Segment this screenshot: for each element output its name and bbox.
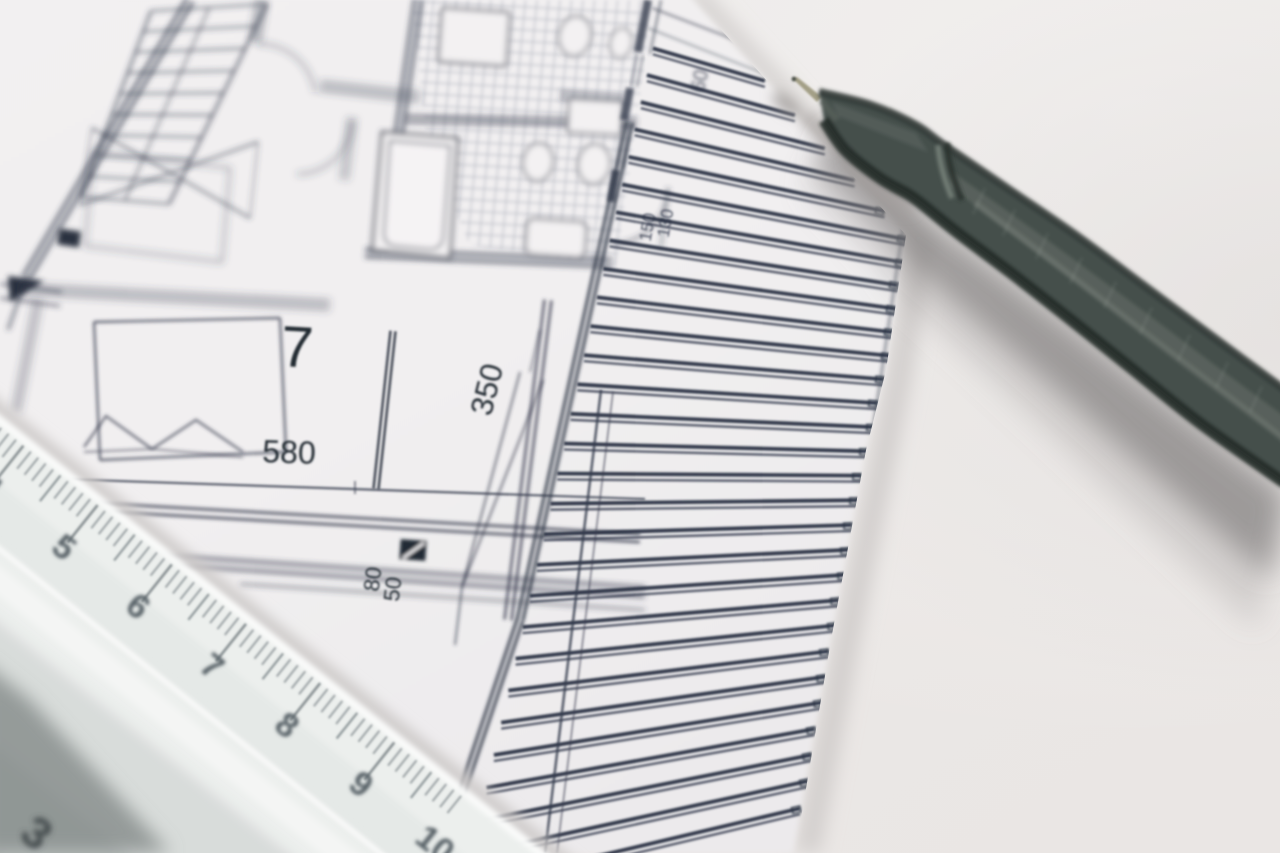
svg-text:7: 7	[279, 314, 315, 381]
svg-text:50: 50	[379, 575, 407, 602]
svg-text:580: 580	[262, 433, 317, 471]
